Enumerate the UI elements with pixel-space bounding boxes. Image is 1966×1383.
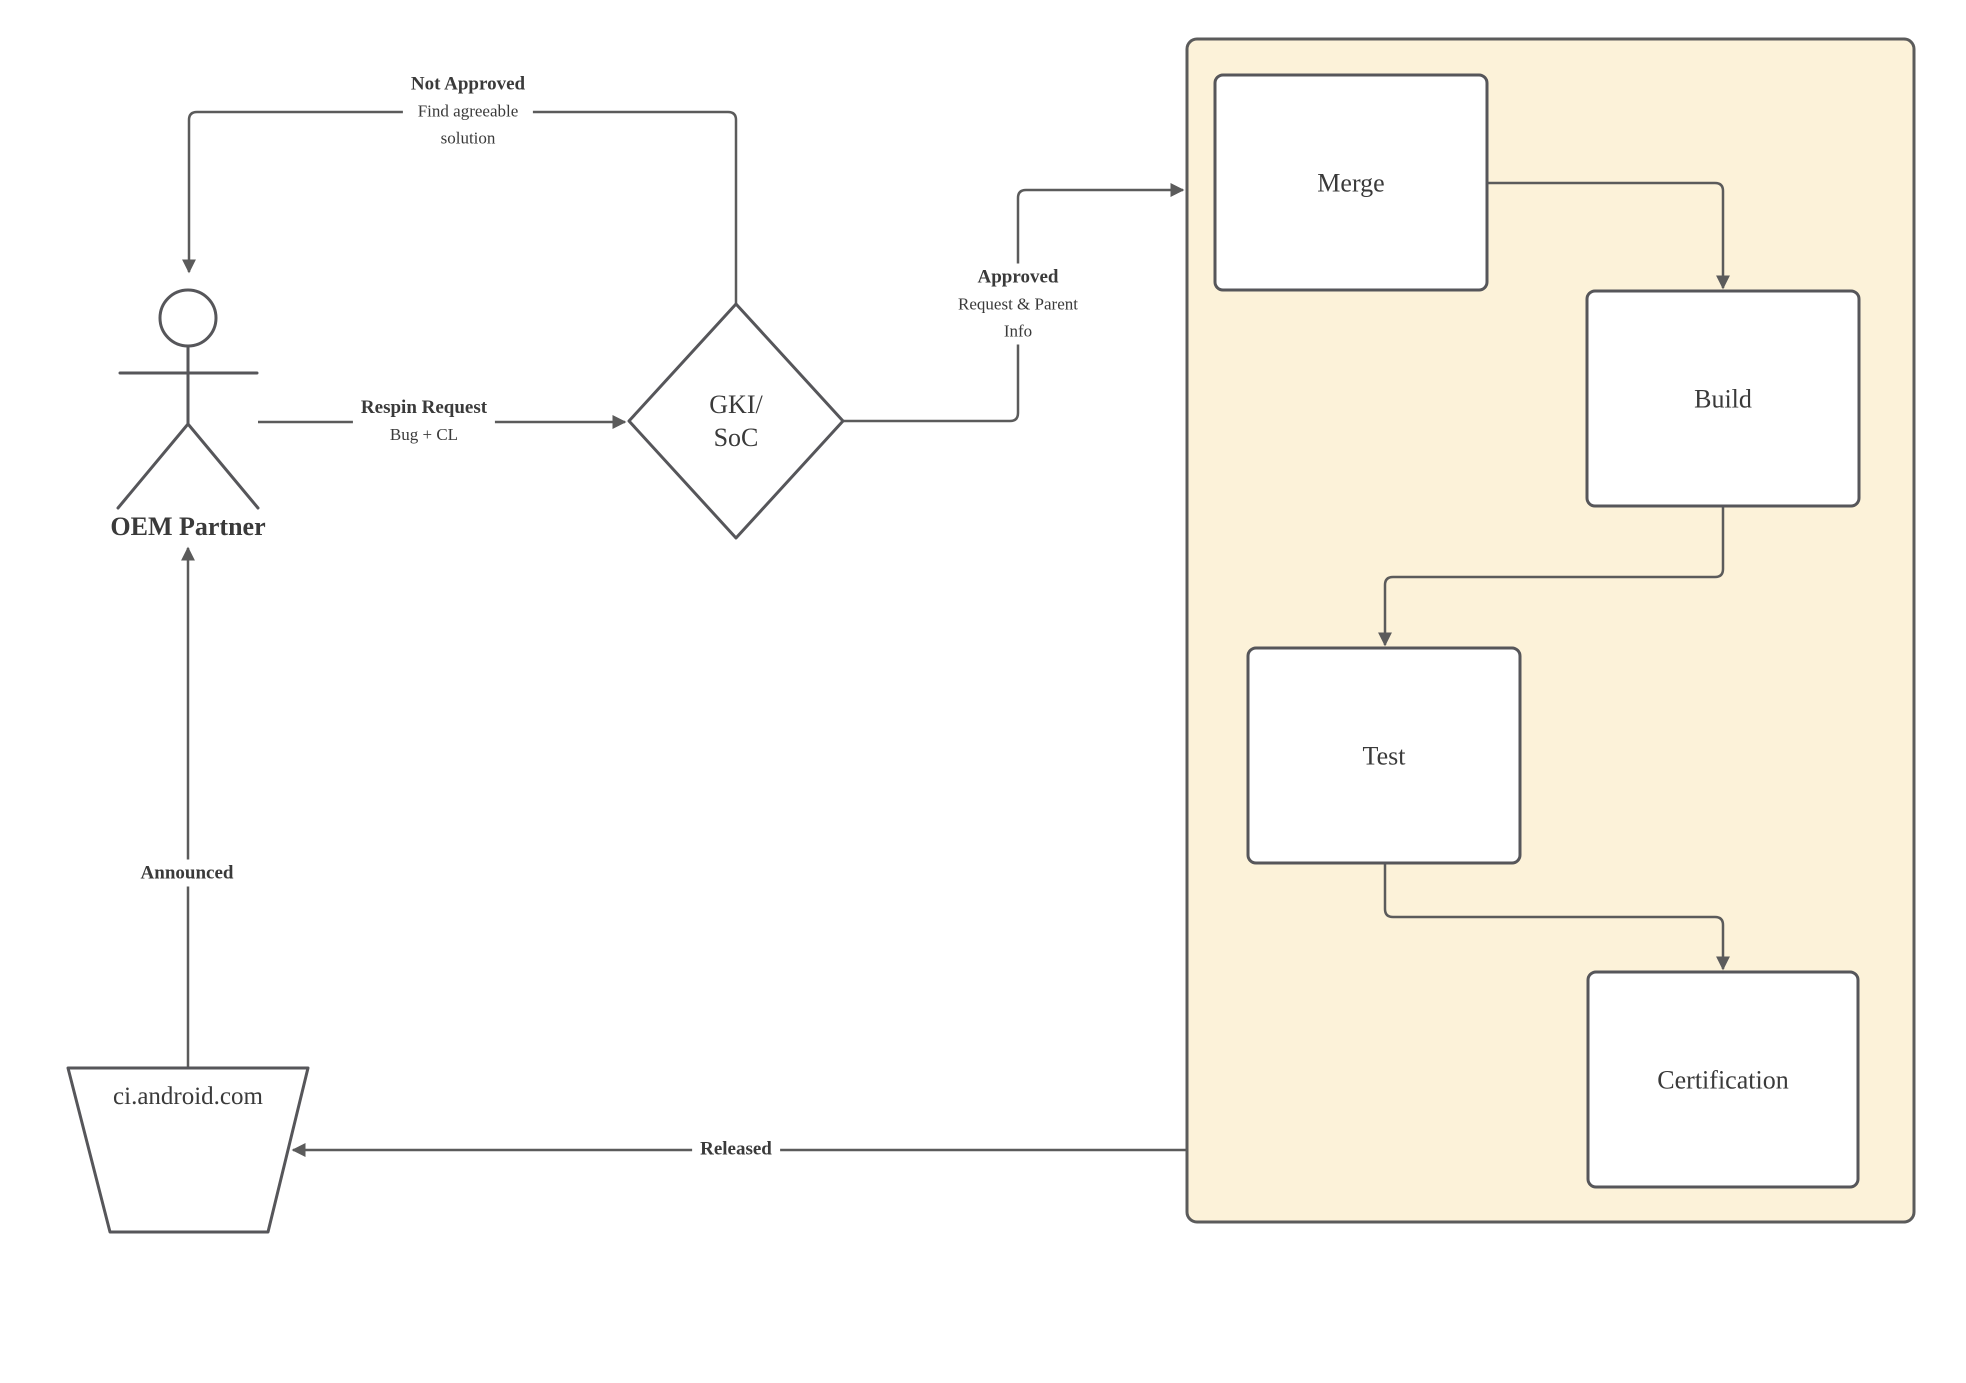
- edge-label-approved: Approved Request & Parent Info: [950, 264, 1086, 345]
- actor-legs-lines: [118, 424, 258, 508]
- edge-label-not-approved-title: Not Approved: [411, 71, 525, 98]
- edge-label-not-approved-sub2: solution: [411, 125, 525, 152]
- actor-figure: [118, 290, 258, 508]
- edge-label-announced: Announced: [133, 860, 242, 887]
- node-label-build: Build: [1694, 383, 1752, 416]
- edge-label-announced-title: Announced: [141, 860, 234, 887]
- edge-label-respin-sub: Bug + CL: [361, 421, 487, 448]
- flowchart-canvas: Not Approved Find agreeable solution Res…: [0, 0, 1966, 1383]
- edge-label-respin-title: Respin Request: [361, 394, 487, 421]
- flowchart-drawing: [0, 0, 1966, 1383]
- decision-label-line1: GKI/: [709, 388, 762, 421]
- node-label-test: Test: [1363, 740, 1406, 773]
- edge-label-approved-sub2: Info: [958, 318, 1078, 345]
- edge-label-released-title: Released: [700, 1136, 772, 1163]
- edge-label-not-approved: Not Approved Find agreeable solution: [403, 71, 533, 152]
- edge-label-released: Released: [692, 1136, 780, 1163]
- datastore-label: ci.android.com: [113, 1083, 263, 1111]
- actor-label: OEM Partner: [110, 512, 265, 542]
- node-label-merge: Merge: [1317, 167, 1384, 200]
- decision-label-line2: SoC: [709, 421, 762, 454]
- edge-label-approved-title: Approved: [958, 264, 1078, 291]
- actor-head-icon: [160, 290, 216, 346]
- edge-label-not-approved-sub1: Find agreeable: [411, 98, 525, 125]
- edge-label-respin-request: Respin Request Bug + CL: [353, 394, 495, 448]
- node-label-certification: Certification: [1657, 1064, 1788, 1097]
- edge-label-approved-sub1: Request & Parent: [958, 291, 1078, 318]
- decision-label: GKI/ SoC: [709, 388, 762, 454]
